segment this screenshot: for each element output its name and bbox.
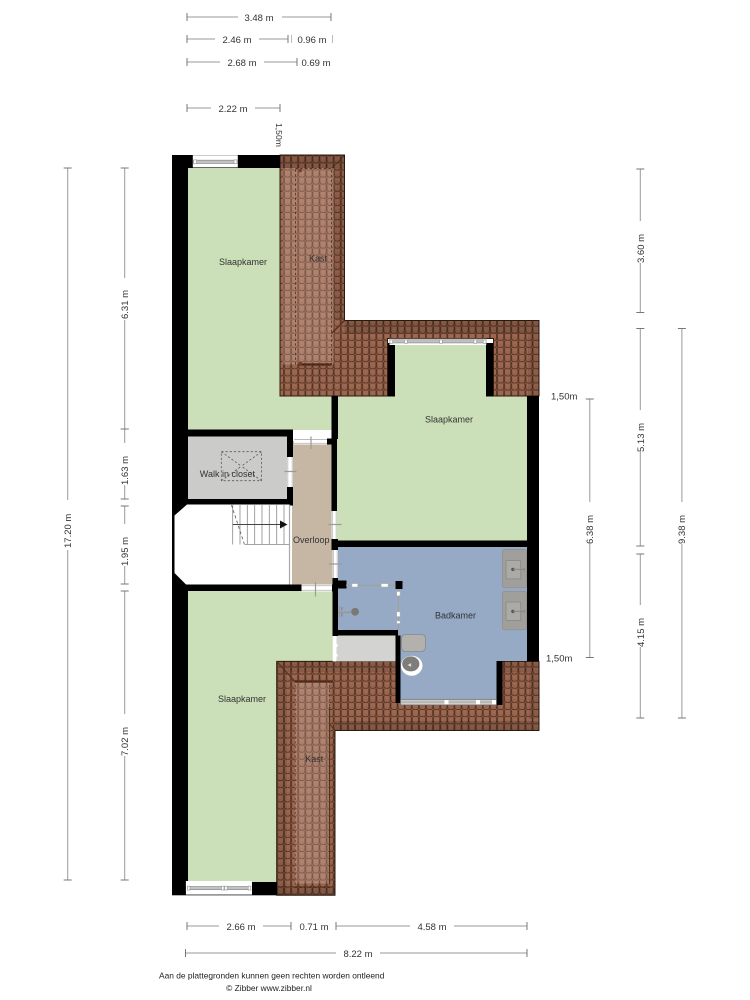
svg-text:2.66 m: 2.66 m: [226, 922, 255, 933]
svg-text:4.58 m: 4.58 m: [417, 922, 446, 933]
svg-text:Badkamer: Badkamer: [435, 611, 476, 621]
svg-text:© Zibber www.zibber.nl: © Zibber www.zibber.nl: [226, 983, 312, 993]
svg-text:0.69 m: 0.69 m: [301, 58, 330, 69]
svg-text:7.02 m: 7.02 m: [120, 727, 131, 756]
svg-text:1,50m: 1,50m: [551, 392, 577, 403]
svg-text:6.38 m: 6.38 m: [585, 515, 596, 544]
svg-text:2.22 m: 2.22 m: [218, 104, 247, 115]
svg-text:17.20 m: 17.20 m: [63, 514, 74, 548]
svg-text:8.22 m: 8.22 m: [343, 949, 372, 960]
svg-text:1,50m: 1,50m: [546, 654, 572, 665]
svg-text:Slaapkamer: Slaapkamer: [219, 257, 267, 267]
svg-text:1.95 m: 1.95 m: [120, 537, 131, 566]
svg-text:0.96 m: 0.96 m: [297, 35, 326, 46]
svg-text:9.38 m: 9.38 m: [677, 515, 688, 544]
svg-text:1,50m: 1,50m: [274, 123, 284, 147]
svg-text:Walk in closet: Walk in closet: [200, 469, 256, 479]
svg-text:2.68 m: 2.68 m: [227, 58, 256, 69]
svg-text:2.46 m: 2.46 m: [222, 35, 251, 46]
svg-text:Kast: Kast: [309, 254, 328, 264]
svg-text:Aan de plattegronden kunnen ge: Aan de plattegronden kunnen geen rechten…: [159, 971, 385, 981]
svg-text:3.48 m: 3.48 m: [244, 13, 273, 24]
svg-text:Overloop: Overloop: [293, 535, 330, 545]
svg-text:5.13 m: 5.13 m: [636, 423, 647, 452]
svg-text:Slaapkamer: Slaapkamer: [425, 415, 473, 425]
svg-text:6.31 m: 6.31 m: [120, 290, 131, 319]
svg-text:Slaapkamer: Slaapkamer: [218, 694, 266, 704]
svg-text:1.63 m: 1.63 m: [120, 456, 131, 485]
svg-text:0.71 m: 0.71 m: [299, 922, 328, 933]
svg-text:4.15 m: 4.15 m: [636, 618, 647, 647]
svg-text:3.60 m: 3.60 m: [636, 234, 647, 263]
svg-text:Kast: Kast: [305, 754, 324, 764]
